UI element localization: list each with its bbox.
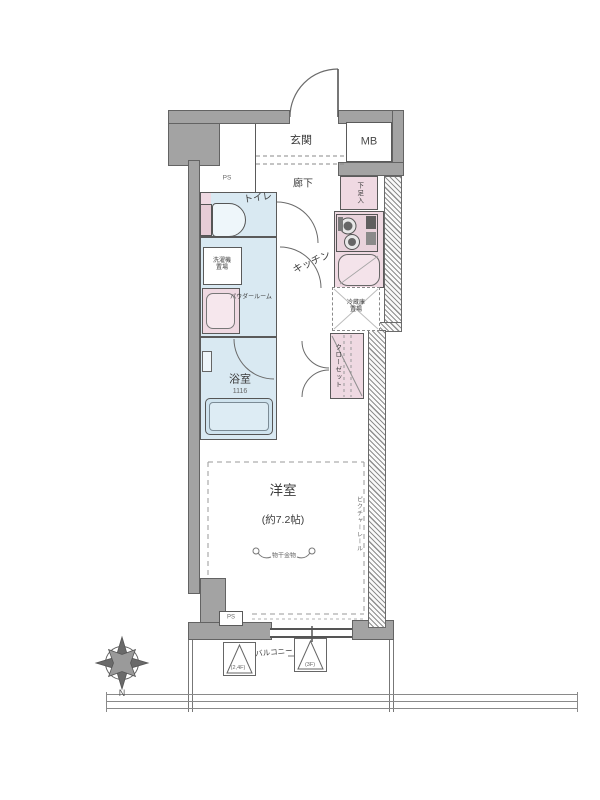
wall-top-left <box>168 110 290 124</box>
balcony-railing-end-right <box>577 692 578 712</box>
label-fridge-line1: 冷蔵庫 <box>347 300 365 307</box>
label-fridge-line2: 置場 <box>347 307 365 314</box>
label-shoe-storage: 下足入 <box>355 182 362 205</box>
label-pipe-space-bottom: PS <box>227 615 235 622</box>
wall-mb-bottom <box>338 162 404 176</box>
floor-plan: 玄関 MB PS 廊下 トイレ 下足入 キッチン 洗濯機 置場 パウダールーム … <box>0 0 600 800</box>
label-compass-north: N <box>119 688 126 698</box>
wall-right-upper-hatched <box>384 176 402 330</box>
closet-door-arc-lower <box>302 370 329 397</box>
label-closet: クローゼット <box>333 344 340 389</box>
label-powder-room: パウダールーム <box>230 295 272 302</box>
balcony-railing-line-1 <box>106 694 578 695</box>
stove-unit <box>336 214 378 252</box>
label-laundry-hook: 物干金物 <box>272 554 296 561</box>
label-hallway: 廊下 <box>293 178 313 190</box>
kitchen-sink <box>338 254 380 286</box>
label-pipe-space-top: PS <box>223 174 232 181</box>
label-balcony: バルコニー <box>255 647 293 659</box>
compass-star-cardinal <box>96 637 148 689</box>
balcony-railing-line-3 <box>106 708 578 709</box>
label-washer-line1: 洗濯機 <box>213 258 231 265</box>
laundry-hook-curve-left <box>258 553 271 558</box>
compass-circle <box>106 647 139 680</box>
toilet-door-arc <box>277 202 318 243</box>
label-fridge-space: 冷蔵庫 置場 <box>347 300 365 314</box>
label-main-room: 洋室 <box>270 483 297 499</box>
laundry-hook-left <box>253 548 259 554</box>
laundry-hook-right <box>309 548 315 554</box>
balcony-railing-line-2 <box>106 701 578 702</box>
label-main-room-size: (約7.2帖) <box>262 514 305 526</box>
label-washer-space: 洗濯機 置場 <box>213 258 231 272</box>
toilet-bowl <box>212 203 246 237</box>
shower-counter <box>202 351 212 372</box>
label-kitchen: キッチン <box>291 250 332 277</box>
balcony-window <box>270 628 352 638</box>
label-entrance: 玄関 <box>290 135 312 148</box>
toilet-tank <box>200 204 212 236</box>
label-hatch-right: (3F) <box>305 662 315 668</box>
compass-star-diagonal <box>109 650 136 677</box>
closet-door-arc-upper <box>302 341 329 368</box>
wall-right-lower-hatched <box>368 330 386 628</box>
laundry-hook-curve-right <box>297 553 310 558</box>
label-picture-rail: ピクチャーレール <box>355 496 362 552</box>
bathtub-inner <box>209 402 269 431</box>
balcony-railing-end-left <box>106 692 107 712</box>
entrance-door-arc <box>290 69 338 117</box>
label-washer-line2: 置場 <box>213 265 231 272</box>
label-hatch-left: (2,4F) <box>231 665 246 671</box>
label-bathroom-size: 1116 <box>233 388 248 396</box>
entrance-left-partition <box>255 124 256 192</box>
plan-line-art <box>0 0 600 800</box>
label-bathroom: 浴室 <box>229 374 251 387</box>
label-meter-box: MB <box>361 136 378 149</box>
bathtub <box>205 398 273 435</box>
wall-left <box>188 160 200 594</box>
